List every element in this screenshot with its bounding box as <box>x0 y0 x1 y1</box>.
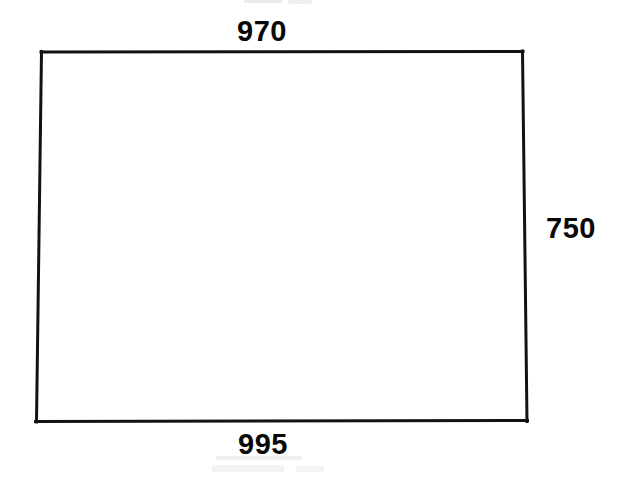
dimension-label-bottom: 995 <box>232 430 294 459</box>
edge-right <box>523 51 528 422</box>
edge-top <box>41 52 523 53</box>
diagram-canvas: 970 750 995 <box>0 0 640 480</box>
dimension-label-top: 970 <box>231 17 293 46</box>
edge-bottom <box>36 421 528 422</box>
edge-left <box>37 52 42 423</box>
dimension-label-right: 750 <box>537 214 605 243</box>
